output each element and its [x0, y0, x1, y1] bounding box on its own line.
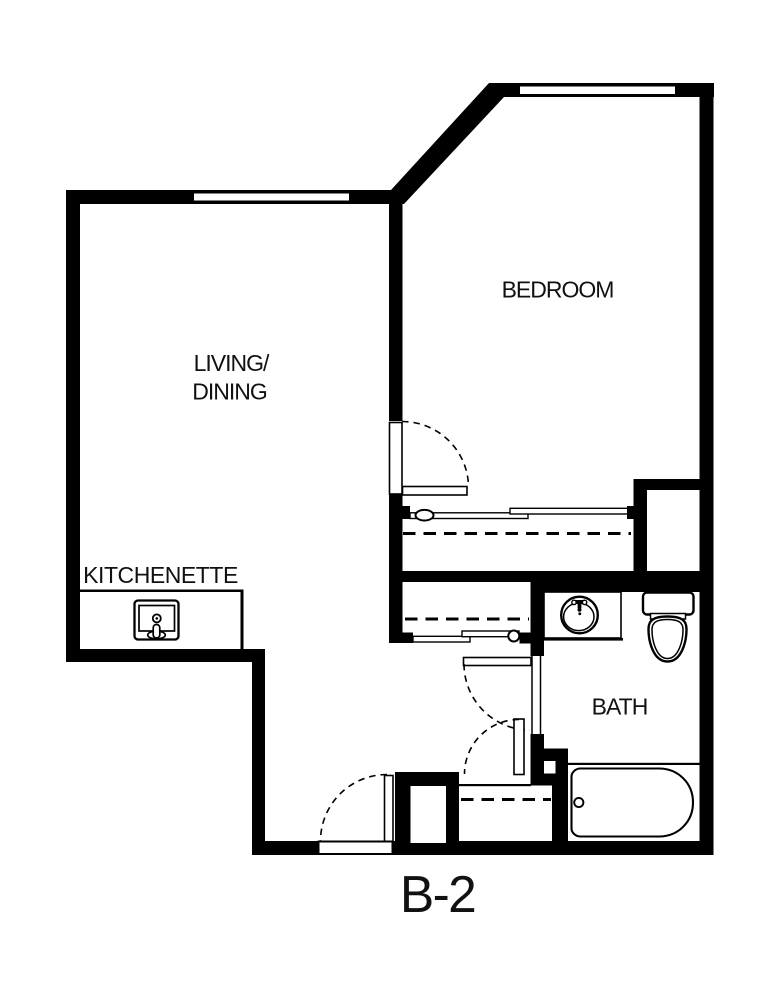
svg-text:BEDROOM: BEDROOM — [502, 277, 614, 303]
svg-text:DINING: DINING — [192, 379, 267, 405]
svg-text:LIVING/: LIVING/ — [194, 350, 270, 376]
svg-text:BATH: BATH — [592, 693, 648, 719]
svg-text:KITCHENETTE: KITCHENETTE — [83, 562, 238, 588]
svg-text:B-2: B-2 — [400, 865, 475, 923]
